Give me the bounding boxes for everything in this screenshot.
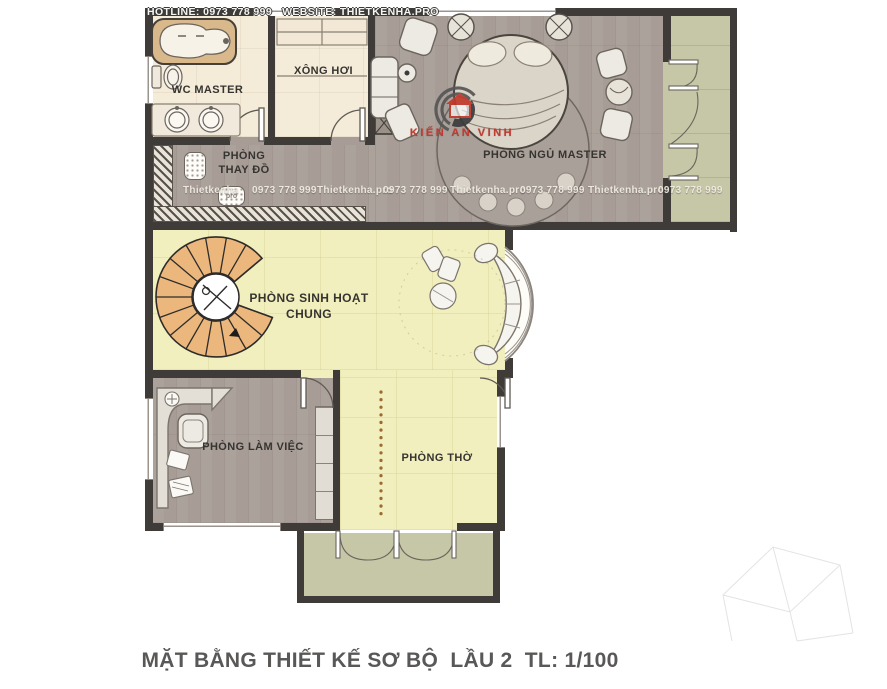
furniture-layer <box>0 0 887 689</box>
watermark-text: Thietkenha.pro <box>317 185 393 196</box>
watermark-text: Thietkenha <box>183 185 239 196</box>
room-label-wc-master: WC MASTER <box>150 83 265 97</box>
folding-doors-bottom <box>336 531 456 560</box>
watermark-text: Thietkenha.pro <box>588 185 664 196</box>
wireframe-watermark <box>723 547 853 641</box>
watermark-text: 0973 778 999 <box>383 185 448 196</box>
watermark-text: Thietkenha.pro <box>450 185 526 196</box>
hotline-banner: HOTLINE: 0973 778 999 WEBSITE: THIETKENH… <box>147 6 439 18</box>
watermark-text: 0973 778 999 <box>520 185 585 196</box>
brand-logo-text: KIẾN AN VINH <box>400 127 524 139</box>
vanity-sinks <box>152 104 240 136</box>
room-label-altar: PHÒNG THỜ <box>378 451 496 465</box>
room-label-living: PHÒNG SINH HOẠT CHUNG <box>228 291 390 322</box>
plan-title: MẶT BẰNG THIẾT KẾ SƠ BỘ LẦU 2 TL: 1/100 <box>0 649 760 673</box>
room-label-master-bedroom: PHÒNG NGỦ MASTER <box>455 148 635 162</box>
watermark-text: 0973 778 999 <box>252 185 317 196</box>
floorplan-canvas: pro <box>0 0 887 689</box>
folding-doors-right <box>669 60 698 180</box>
watermark-text: 0973 778 999 <box>658 185 723 196</box>
bathtub <box>152 19 236 64</box>
room-label-closet: PHÒNG THAY ĐỒ <box>196 149 292 178</box>
room-label-sauna: XÔNG HƠI <box>276 64 371 78</box>
room-label-office: PHÒNG LÀM VIỆC <box>172 440 334 454</box>
